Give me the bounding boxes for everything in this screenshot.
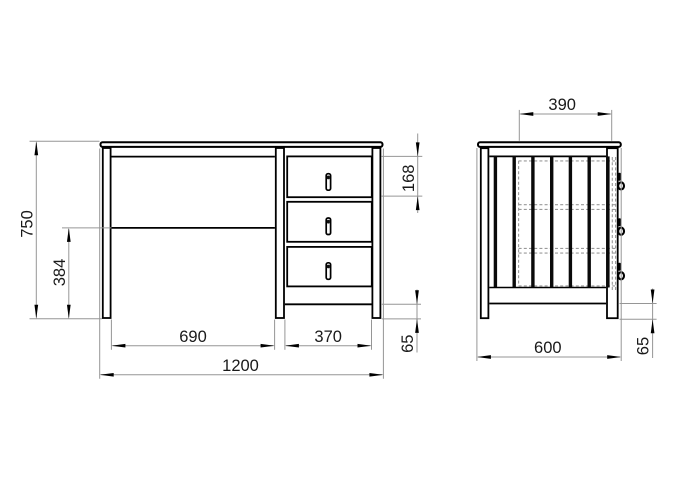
svg-text:168: 168 <box>400 165 418 193</box>
svg-text:600: 600 <box>534 339 562 357</box>
svg-text:390: 390 <box>548 96 576 114</box>
svg-text:65: 65 <box>399 335 417 353</box>
svg-text:1200: 1200 <box>222 357 259 375</box>
svg-text:65: 65 <box>635 337 653 355</box>
svg-text:370: 370 <box>314 328 342 346</box>
svg-text:750: 750 <box>19 210 37 238</box>
svg-text:690: 690 <box>179 328 207 346</box>
svg-text:384: 384 <box>51 259 69 287</box>
